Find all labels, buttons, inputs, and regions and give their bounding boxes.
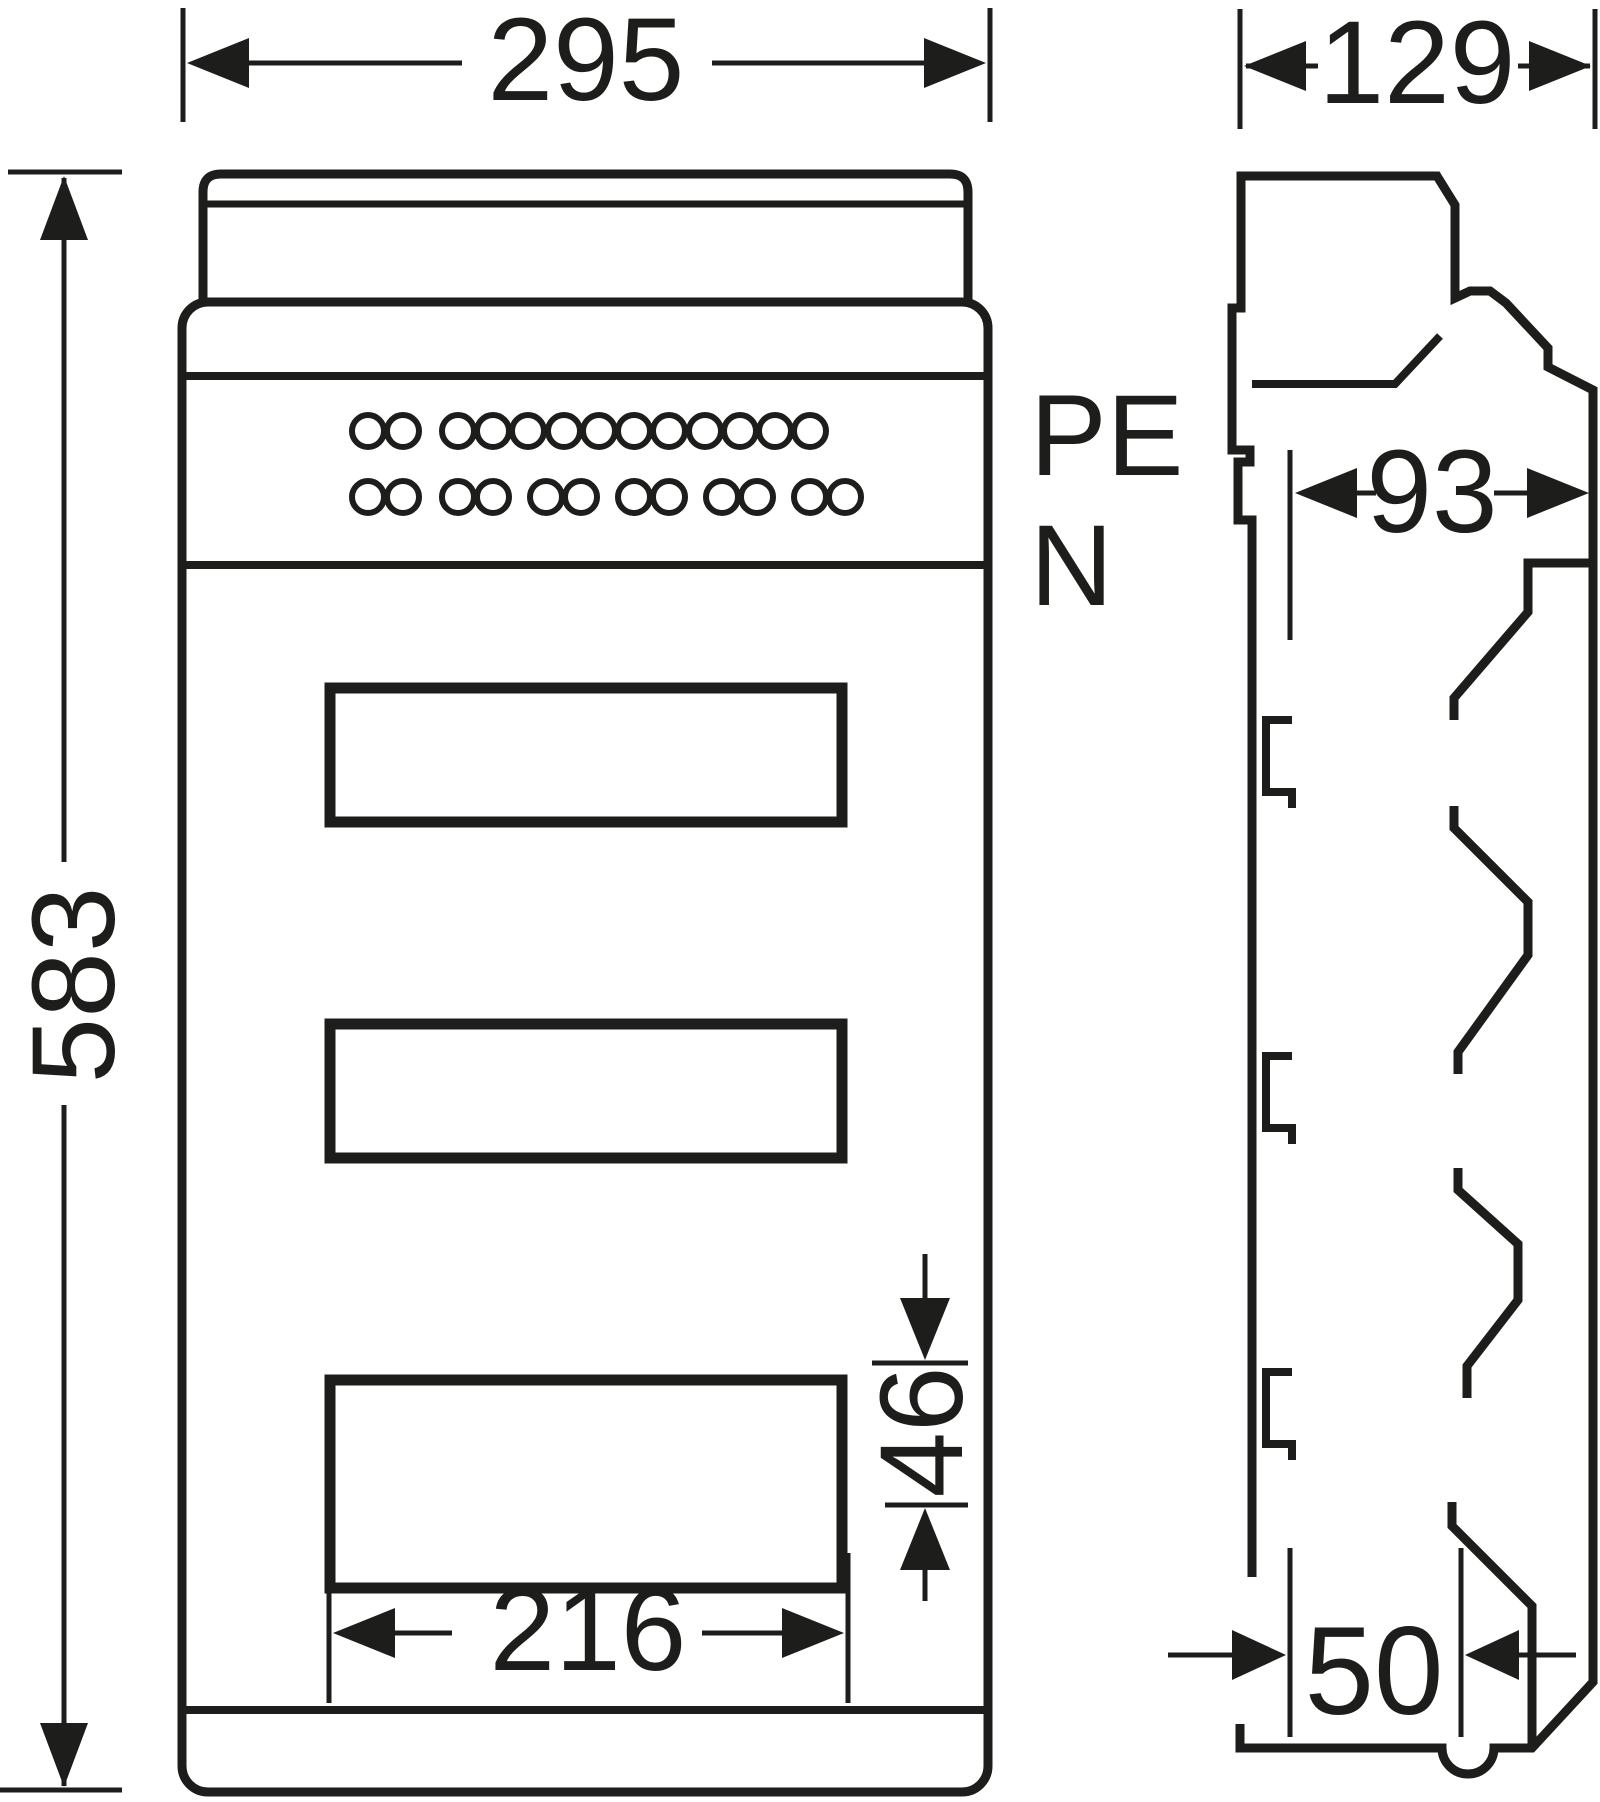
side-lid-inner-edge: [1252, 336, 1440, 384]
dim-46-arrow-up-icon: [900, 1508, 950, 1570]
side-view: [1232, 176, 1593, 1774]
terminal-hole: [387, 481, 419, 513]
dim-295-value: 295: [488, 0, 685, 126]
terminal-hole: [387, 415, 419, 447]
terminal-hole: [829, 481, 861, 513]
terminal-hole: [442, 415, 474, 447]
terminal-hole: [512, 415, 544, 447]
dim-129-value: 129: [1319, 0, 1516, 129]
side-wall-profile-1: [1454, 563, 1591, 720]
module-window-1: [330, 688, 842, 822]
terminal-hole: [618, 415, 650, 447]
dim-216-value: 216: [490, 1564, 687, 1696]
terminal-hole: [442, 481, 474, 513]
side-wall-profile-2: [1454, 806, 1528, 1074]
dim-overall-width: 295: [183, 0, 990, 126]
dim-583-arrow-up-icon: [40, 176, 88, 240]
dim-50-arrow-left-icon: [1465, 1630, 1519, 1680]
terminal-hole: [352, 415, 384, 447]
n-terminal-label: N: [1030, 502, 1113, 630]
dim-93-value: 93: [1366, 426, 1497, 558]
terminal-holes: [352, 415, 861, 513]
dim-overall-depth: 129: [1240, 0, 1595, 129]
terminal-hole: [548, 415, 580, 447]
terminal-hole: [477, 415, 509, 447]
side-outer-contour: [1232, 176, 1593, 1774]
dim-129-arrow-left-icon: [1244, 41, 1306, 91]
terminal-hole: [618, 481, 650, 513]
dim-bottom-depth: 50: [1168, 1548, 1576, 1741]
dim-cutout-width: 216: [329, 1553, 848, 1703]
terminal-hole: [689, 415, 721, 447]
dim-295-arrow-left-icon: [187, 38, 249, 88]
dim-129-arrow-right-icon: [1529, 41, 1591, 91]
terminal-hole: [794, 415, 826, 447]
dim-583-value: 583: [8, 887, 140, 1084]
dim-216-arrow-right-icon: [782, 1608, 844, 1658]
terminal-hole: [352, 481, 384, 513]
terminal-hole: [565, 481, 597, 513]
dim-overall-height: 583: [0, 172, 140, 1790]
terminal-hole: [706, 481, 738, 513]
dim-295-arrow-right-icon: [924, 38, 986, 88]
terminal-hole: [741, 481, 773, 513]
terminal-hole: [583, 415, 615, 447]
dim-inner-depth: 93: [1290, 426, 1589, 640]
terminal-hole: [530, 481, 562, 513]
dim-cutout-height: 46: [856, 1254, 988, 1601]
dim-46-arrow-down-icon: [900, 1298, 950, 1360]
side-mounting-clip-1: [1266, 720, 1292, 808]
dim-583-arrow-down-icon: [40, 1723, 88, 1787]
dim-93-arrow-left-icon: [1295, 468, 1357, 518]
terminal-hole: [653, 481, 685, 513]
side-mounting-clip-2: [1266, 1056, 1292, 1144]
terminal-hole: [724, 415, 756, 447]
front-lid-outline: [203, 174, 968, 302]
dim-50-arrow-right-icon: [1232, 1630, 1286, 1680]
side-mounting-clip-3: [1266, 1372, 1292, 1460]
module-window-2: [330, 1024, 842, 1158]
front-view: [182, 174, 988, 1792]
side-wall-profile-3: [1458, 1168, 1518, 1398]
terminal-hole: [794, 481, 826, 513]
terminal-hole: [477, 481, 509, 513]
module-window-3: [330, 1380, 842, 1588]
pe-terminal-label: PE: [1030, 372, 1183, 500]
dim-46-value: 46: [856, 1366, 988, 1497]
dimension-drawing: PE N 295 583: [0, 0, 1600, 1802]
dim-216-arrow-left-icon: [333, 1608, 395, 1658]
dim-50-value: 50: [1304, 1602, 1443, 1741]
side-wall-profile-4: [1452, 1502, 1532, 1744]
dim-93-arrow-right-icon: [1527, 468, 1589, 518]
terminal-hole: [653, 415, 685, 447]
terminal-hole: [759, 415, 791, 447]
